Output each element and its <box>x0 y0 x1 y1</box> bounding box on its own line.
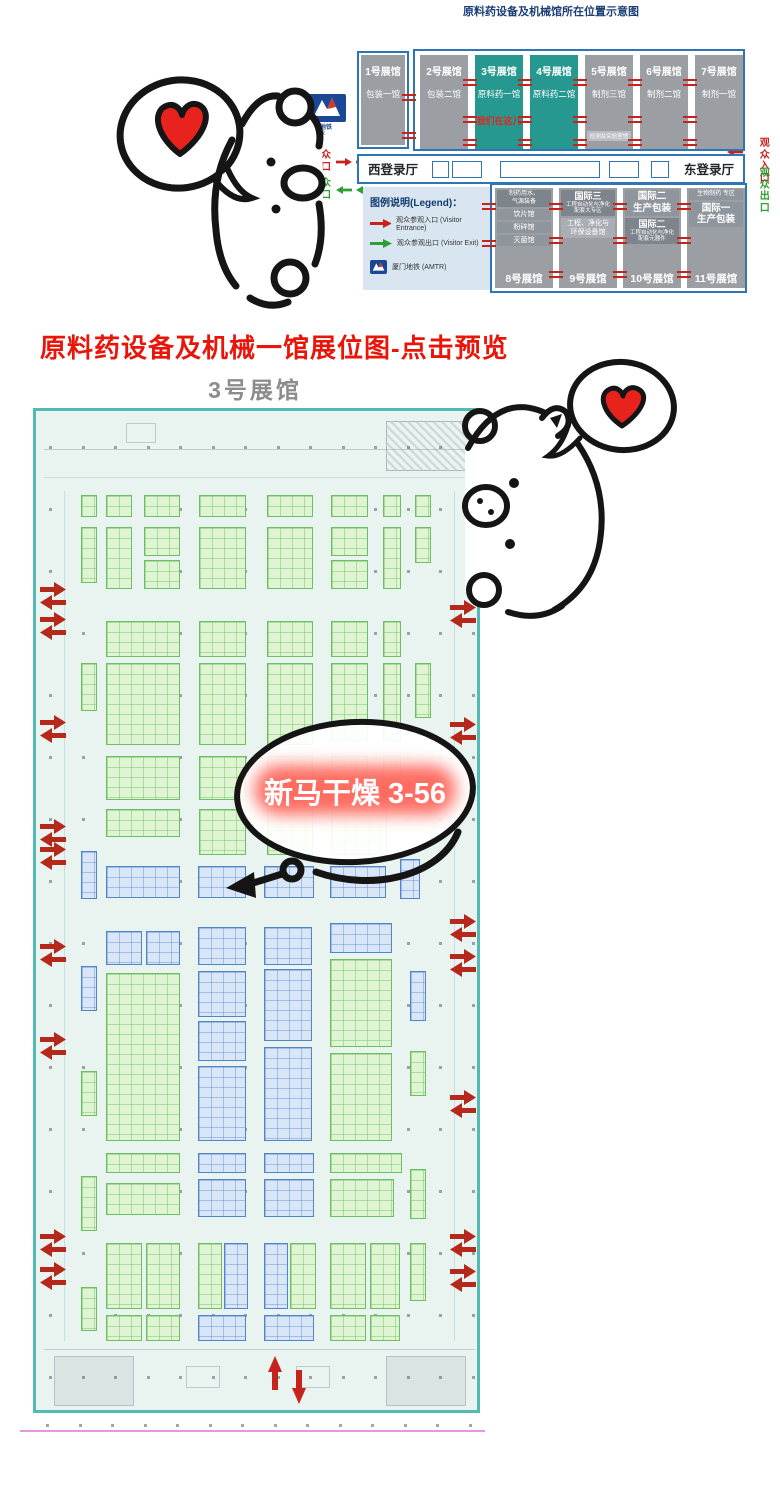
aisle-entrance-arrows <box>448 912 478 942</box>
red-connector <box>573 79 587 86</box>
aisle-entrance-arrows <box>448 1227 478 1257</box>
booth-block <box>370 1315 400 1341</box>
booth-block <box>290 1243 316 1309</box>
bottom-entrance-arrows <box>258 1350 318 1408</box>
booth-block <box>383 495 401 517</box>
hall-8: 制药用水、气源装备饮片馆粉碎馆灭菌馆8号展馆 <box>495 188 553 288</box>
booth-block <box>267 621 313 657</box>
hall-sub-label: 检测及实验室馆 <box>587 131 631 141</box>
booth-block <box>106 1183 180 1215</box>
column-dot <box>179 1376 182 1379</box>
pig-nostril <box>488 509 494 515</box>
pig-eye <box>509 478 519 488</box>
booth-block <box>331 560 368 589</box>
column-dot <box>342 446 345 449</box>
hall-name: 原料药一馆 <box>475 88 523 100</box>
hall-name: 制剂三馆 <box>585 88 633 100</box>
column-dot <box>49 1376 52 1379</box>
column-dot <box>49 756 52 759</box>
booth-block <box>264 1047 312 1141</box>
bear-eye <box>267 158 276 167</box>
red-connector <box>518 79 532 86</box>
booth-block <box>106 527 132 589</box>
column-dot <box>277 446 280 449</box>
column-dot <box>49 1004 52 1007</box>
hall-section: 国际一生产包装 <box>689 202 743 228</box>
aisle-entrance-arrows <box>448 1262 478 1292</box>
booth-block <box>81 1287 97 1331</box>
booth-block <box>81 495 97 517</box>
hall-num: 1号展馆 <box>361 63 405 78</box>
column-dot <box>472 1314 475 1317</box>
column-dot <box>244 1376 247 1379</box>
red-connector <box>463 139 477 146</box>
booth-block <box>106 663 180 745</box>
aisle-entrance-arrows <box>38 610 68 640</box>
column-dot <box>472 942 475 945</box>
hall-3: 3号展馆原料药一馆我们在这儿 <box>475 55 523 149</box>
registration-strip: 西登录厅 东登录厅 <box>357 154 745 184</box>
column-dot <box>82 1252 85 1255</box>
entrance-door <box>432 161 449 178</box>
column-dot <box>407 1128 410 1131</box>
preview-link[interactable]: 原料药设备及机械一馆展位图-点击预览 <box>40 328 509 365</box>
legend-exit-text: 观众参观出口 (Visitor Exit) <box>397 238 479 248</box>
booth-block <box>330 1243 366 1309</box>
column-dot <box>82 1066 85 1069</box>
west-hall-label: 西登录厅 <box>362 159 424 181</box>
booth-block <box>264 1153 314 1173</box>
hall-label: 8号展馆 <box>495 271 553 286</box>
column-dot <box>472 1004 475 1007</box>
hall-name: 制剂二馆 <box>640 88 688 100</box>
column-dot <box>82 632 85 635</box>
bear-ear <box>279 91 311 123</box>
legend-entrance: 观众参观入口 (Visitor Entrance) <box>370 215 490 232</box>
hall-section: 工程、净化与环保设备馆 <box>561 218 615 238</box>
aisle-entrance-arrows <box>38 937 68 967</box>
red-connector <box>463 79 477 86</box>
column-dot <box>407 1376 410 1379</box>
structure-room <box>186 1366 220 1388</box>
booth-block <box>383 527 401 589</box>
legend-entrance-text: 观众参观入口 (Visitor Entrance) <box>396 215 490 232</box>
red-connector <box>518 139 532 146</box>
booth-block <box>198 1243 222 1309</box>
column-dot <box>472 694 475 697</box>
column-dot <box>49 1066 52 1069</box>
hall-2: 2号展馆包装二馆 <box>420 55 468 149</box>
hall-section-line: 气源装备 <box>497 199 551 207</box>
hall3-title: 3号展馆 <box>130 371 380 405</box>
east-exit-text: 观众出口 <box>760 168 780 214</box>
metro-icon <box>370 260 387 274</box>
hall-section-line: 国际二 <box>625 219 679 230</box>
hall-section-line: 国际二 <box>625 191 679 203</box>
hall-section-line: 国际三 <box>561 191 615 202</box>
column-dot <box>49 446 52 449</box>
booth-block <box>106 1153 180 1173</box>
booth-block <box>330 1153 402 1173</box>
booth-block <box>331 495 368 517</box>
callout-arrowhead <box>226 872 256 898</box>
column-dot <box>309 1376 312 1379</box>
column-dot <box>439 632 442 635</box>
red-connector <box>402 132 416 139</box>
site-boundary-line <box>20 1430 485 1432</box>
booth-block <box>198 1179 246 1217</box>
aisle-entrance-arrows <box>38 713 68 743</box>
pig-paw <box>469 575 499 605</box>
column-dot <box>374 694 377 697</box>
column-dot <box>439 1252 442 1255</box>
entrance-door <box>651 161 669 178</box>
arrow-right-green-icon <box>370 239 392 248</box>
red-connector <box>402 94 416 101</box>
column-dot <box>49 880 52 883</box>
column-dot <box>469 1424 472 1427</box>
column-dot <box>439 1314 442 1317</box>
red-connector <box>677 271 691 278</box>
booth-block <box>415 495 431 517</box>
column-dot <box>46 1424 49 1427</box>
red-connector <box>463 116 477 123</box>
legend-box: 图例说明(Legend)： 观众参观入口 (Visitor Entrance) … <box>363 187 490 290</box>
callout-arrow-loop <box>283 861 301 879</box>
aisle-entrance-arrows <box>38 580 68 610</box>
column-dot <box>439 508 442 511</box>
column-dot <box>82 818 85 821</box>
red-connector <box>518 116 532 123</box>
column-dot <box>179 446 182 449</box>
booth-block <box>410 1169 426 1219</box>
structure-room <box>386 1356 466 1406</box>
booth-block <box>410 971 426 1021</box>
hall-num: 3号展馆 <box>475 63 523 78</box>
booth-block <box>81 851 97 899</box>
column-dot <box>82 446 85 449</box>
hall-section: 国际二生产包装 <box>625 190 679 216</box>
red-connector <box>573 116 587 123</box>
column-dot <box>439 1376 442 1379</box>
booth-block <box>198 1315 246 1341</box>
red-connector <box>549 271 563 278</box>
column-dot <box>244 446 247 449</box>
entrance-door <box>452 161 482 178</box>
hall-num: 6号展馆 <box>640 63 688 78</box>
hall3-floorplan <box>33 408 480 1413</box>
booth-block <box>106 495 132 517</box>
booth-block <box>106 621 180 657</box>
red-connector <box>613 237 627 244</box>
column-dot <box>114 446 117 449</box>
booth-block <box>267 527 313 589</box>
column-dot <box>49 1190 52 1193</box>
column-dot <box>49 1128 52 1131</box>
column-dot <box>212 1376 215 1379</box>
aisle-entrance-arrows <box>448 1088 478 1118</box>
booth-block <box>81 527 97 583</box>
aisle-entrance-arrows <box>38 1227 68 1257</box>
booth-block <box>330 959 392 1047</box>
column-dot <box>439 942 442 945</box>
hall-10: 国际二生产包装国际二工程自动化与净化配套元器件10号展馆 <box>623 188 681 288</box>
column-dot <box>49 1314 52 1317</box>
column-dot <box>277 1376 280 1379</box>
hall-section-line: 配套元器件 <box>625 236 679 243</box>
booth-block <box>144 495 180 517</box>
column-dot <box>472 1066 475 1069</box>
column-dot <box>309 446 312 449</box>
booth-block <box>199 527 246 589</box>
up-down-arrows-icon <box>258 1350 318 1408</box>
callout-text: 新马干燥 3-56 <box>264 777 446 810</box>
hall-1: 1号展馆 包装一馆 <box>361 55 405 145</box>
hall-section: 灭菌馆 <box>497 235 551 246</box>
column-dot <box>114 1376 117 1379</box>
hall-label: 9号展馆 <box>559 271 617 286</box>
column-dot <box>436 1424 439 1427</box>
hall-9: 国际三工程自动化与净化配套大专区工程、净化与环保设备馆9号展馆 <box>559 188 617 288</box>
column-dot <box>339 1424 342 1427</box>
booth-block <box>264 1243 288 1309</box>
bear-muzzle <box>284 168 322 198</box>
booth-block <box>106 931 142 965</box>
hall-name: 包装二馆 <box>420 88 468 100</box>
red-connector <box>677 203 691 210</box>
column-dot <box>407 570 410 573</box>
column-dot <box>404 1424 407 1427</box>
column-dot <box>79 1424 82 1427</box>
hall-section-line: 生物制药 专区 <box>689 191 743 199</box>
booth-block <box>264 1315 314 1341</box>
pig-eye <box>505 539 515 549</box>
column-dot <box>439 1066 442 1069</box>
column-dot <box>439 1128 442 1131</box>
structure-room <box>126 423 156 443</box>
booth-block <box>331 621 368 657</box>
aisle-entrance-arrows <box>38 840 68 870</box>
column-dot <box>111 1424 114 1427</box>
red-connector <box>613 203 627 210</box>
column-dot <box>274 1424 277 1427</box>
column-dot <box>49 694 52 697</box>
column-dot <box>147 1376 150 1379</box>
booth-block <box>81 966 97 1011</box>
overview-title: 原料药设备及机械馆所在位置示意图 <box>355 3 747 19</box>
structure-line <box>44 477 475 478</box>
hall-section-line: 灭菌馆 <box>497 236 551 245</box>
booth-block <box>264 1179 314 1217</box>
column-dot <box>82 942 85 945</box>
column-dot <box>306 1424 309 1427</box>
column-dot <box>144 1424 147 1427</box>
legend-exit: 观众参观出口 (Visitor Exit) <box>370 238 490 248</box>
booth-block <box>146 1315 180 1341</box>
hall-label: 10号展馆 <box>623 271 681 286</box>
booth-block <box>106 1315 142 1341</box>
hall-name: 原料药二馆 <box>530 88 578 100</box>
hall-section-line: 制药用水、 <box>497 191 551 199</box>
booth-block <box>106 866 180 898</box>
hall-name: 制剂一馆 <box>695 88 743 100</box>
hall-label: 11号展馆 <box>687 271 745 286</box>
halls-8-11-group: 制药用水、气源装备饮片馆粉碎馆灭菌馆8号展馆国际三工程自动化与净化配套大专区工程… <box>490 183 747 293</box>
red-connector <box>628 139 642 146</box>
booth-block <box>330 1053 392 1141</box>
booth-block <box>330 923 392 953</box>
hall-7: 7号展馆制剂一馆 <box>695 55 743 149</box>
booth-block <box>144 527 180 556</box>
red-connector <box>549 237 563 244</box>
hall-section-line: 生产包装 <box>689 214 743 226</box>
booth-block <box>383 621 401 657</box>
column-dot <box>209 1424 212 1427</box>
column-dot <box>212 446 215 449</box>
column-dot <box>147 446 150 449</box>
column-dot <box>374 508 377 511</box>
booth-block <box>264 969 312 1041</box>
booth-block <box>198 1153 246 1173</box>
hall-section-line: 国际一 <box>689 203 743 215</box>
booth-block <box>224 1243 248 1309</box>
red-connector <box>613 271 627 278</box>
hall-4: 4号展馆原料药二馆 <box>530 55 578 149</box>
hall-section: 国际三工程自动化与净化配套大专区 <box>561 190 615 216</box>
column-dot <box>439 446 442 449</box>
hall-section-line: 饮片馆 <box>497 210 551 219</box>
red-connector <box>628 116 642 123</box>
legend-metro: 厦门地铁 (AMTR) <box>370 260 490 274</box>
hall-6: 6号展馆制剂二馆 <box>640 55 688 149</box>
hall-num: 5号展馆 <box>585 63 633 78</box>
booth-block <box>264 927 312 965</box>
hall-name: 包装一馆 <box>361 88 405 100</box>
booth-block <box>106 809 180 837</box>
booth-block <box>331 527 368 556</box>
red-connector <box>683 79 697 86</box>
column-dot <box>407 1314 410 1317</box>
red-connector <box>683 116 697 123</box>
hall-section: 生物制药 专区 <box>689 190 743 200</box>
booth-block <box>146 931 180 965</box>
entrance-door <box>500 161 600 178</box>
we-are-here-note: 我们在这儿 <box>475 114 523 127</box>
booth-block <box>198 1021 246 1061</box>
column-dot <box>176 1424 179 1427</box>
column-dot <box>407 942 410 945</box>
column-dot <box>371 1424 374 1427</box>
column-dot <box>407 694 410 697</box>
booth-block <box>330 1179 394 1217</box>
column-dot <box>241 1424 244 1427</box>
booth-block <box>415 527 431 563</box>
column-dot <box>82 756 85 759</box>
booth-block <box>410 1051 426 1096</box>
column-dot <box>439 1190 442 1193</box>
column-dot <box>407 632 410 635</box>
hall-section: 饮片馆 <box>497 209 551 220</box>
red-connector <box>549 203 563 210</box>
booth-block <box>198 927 246 965</box>
pig-nostril <box>477 498 483 504</box>
east-hall-label: 东登录厅 <box>678 159 740 181</box>
booth-block <box>146 1243 180 1309</box>
column-dot <box>472 1376 475 1379</box>
column-dot <box>439 570 442 573</box>
hall-num: 2号展馆 <box>420 63 468 78</box>
entrance-door <box>609 161 639 178</box>
booth-block <box>81 663 97 711</box>
hall-section: 制药用水、气源装备 <box>497 190 551 207</box>
overview-map: 1号展馆 包装一馆 2号展馆包装二馆3号展馆原料药一馆我们在这儿4号展馆原料药二… <box>355 46 755 298</box>
column-dot <box>82 1128 85 1131</box>
structure-room <box>54 1356 134 1406</box>
hall-section-line: 工程、净化与 <box>561 219 615 228</box>
booth-block <box>81 1176 97 1231</box>
hall-5: 5号展馆制剂三馆检测及实验室馆 <box>585 55 633 149</box>
column-dot <box>472 632 475 635</box>
column-dot <box>82 1376 85 1379</box>
red-connector <box>677 237 691 244</box>
booth-block <box>106 1243 142 1309</box>
page: 原料药设备及机械馆所在位置示意图 厦门地铁 AMTR 观众入口 观众出口 观众入… <box>0 0 780 1487</box>
column-dot <box>439 1004 442 1007</box>
legend-title: 图例说明(Legend)： <box>370 194 490 209</box>
hall-section-line: 粉碎馆 <box>497 223 551 232</box>
pig-mascot-right <box>450 356 690 622</box>
aisle-entrance-arrows <box>448 947 478 977</box>
booth-block <box>370 1243 400 1309</box>
hall-section-line: 生产包装 <box>625 203 679 215</box>
booth-block <box>267 495 313 517</box>
booth-block <box>410 1243 426 1301</box>
booth-block <box>199 621 246 657</box>
column-dot <box>49 508 52 511</box>
hall-section-line: 环保设备馆 <box>561 228 615 237</box>
bear-mascot-top <box>112 52 340 317</box>
callout-annotation: 新马干燥 3-56 <box>218 710 488 900</box>
red-connector <box>573 139 587 146</box>
booth-block <box>81 1071 97 1116</box>
hall-num: 4号展馆 <box>530 63 578 78</box>
booth-block <box>106 973 180 1141</box>
hall-section: 国际二工程自动化与净化配套元器件 <box>625 218 679 244</box>
bear-eye <box>272 205 281 214</box>
column-dot <box>374 632 377 635</box>
column-dot <box>374 1376 377 1379</box>
halls-2-7-group: 2号展馆包装二馆3号展馆原料药一馆我们在这儿4号展馆原料药二馆5号展馆制剂三馆检… <box>413 49 745 151</box>
booth-block <box>198 1066 246 1141</box>
arrow-right-red-icon <box>370 219 391 228</box>
hall-11: 生物制药 专区国际一生产包装11号展馆 <box>687 188 745 288</box>
column-dot <box>472 1190 475 1193</box>
column-dot <box>407 446 410 449</box>
pig-snout <box>465 487 507 525</box>
booth-block <box>198 971 246 1017</box>
column-dot <box>472 1128 475 1131</box>
booth-block <box>106 756 180 800</box>
column-dot <box>374 570 377 573</box>
column-dot <box>49 570 52 573</box>
hall-num: 7号展馆 <box>695 63 743 78</box>
aisle-entrance-arrows <box>38 1260 68 1290</box>
column-dot <box>407 508 410 511</box>
column-dot <box>439 694 442 697</box>
booth-block <box>144 560 180 589</box>
hall-section-line: 配套大专区 <box>561 208 615 215</box>
column-dot <box>342 1376 345 1379</box>
